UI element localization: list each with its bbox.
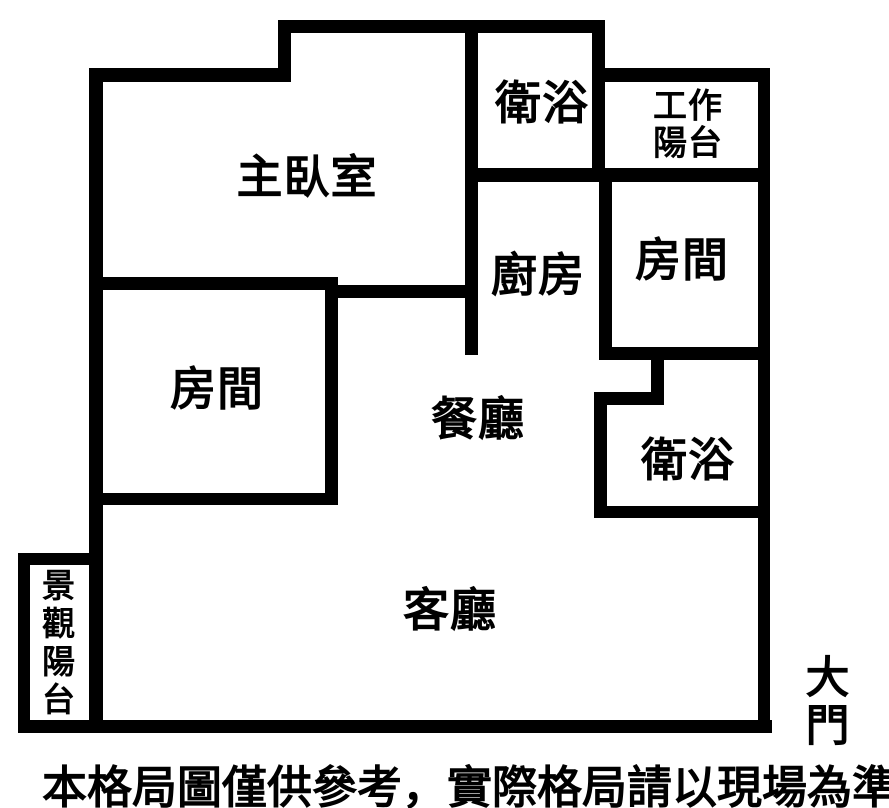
- wall-segment-21: [18, 720, 772, 733]
- label-master-bedroom: 主臥室: [237, 153, 378, 203]
- wall-segment-19: [18, 553, 103, 565]
- label-room-right: 房間: [635, 236, 729, 286]
- disclaimer-text: 本格局圖僅供參考，實際格局請以現場為準: [42, 751, 889, 808]
- wall-segment-3: [278, 20, 605, 33]
- wall-segment-12: [325, 277, 338, 505]
- wall-segment-10: [89, 277, 338, 290]
- label-kitchen: 廚房: [491, 251, 585, 301]
- wall-segment-5: [592, 20, 605, 182]
- wall-segment-0: [89, 68, 103, 733]
- label-room-left: 房間: [170, 365, 264, 415]
- wall-segment-4: [465, 20, 478, 355]
- label-bathroom-top: 衛浴: [495, 79, 589, 129]
- label-dining-room: 餐廳: [431, 395, 525, 445]
- label-living-room: 客廳: [403, 586, 497, 636]
- label-work-balcony: 工作 陽台: [653, 88, 723, 161]
- wall-segment-8: [465, 168, 770, 182]
- wall-segment-18: [594, 506, 770, 518]
- wall-segment-1: [89, 68, 291, 82]
- wall-segment-6: [592, 68, 770, 82]
- label-main-door: 大門: [798, 654, 859, 749]
- label-view-balcony: 景觀陽台: [40, 568, 73, 720]
- wall-segment-14: [599, 347, 770, 360]
- wall-segment-17: [594, 392, 607, 518]
- wall-segment-20: [18, 553, 30, 733]
- floor-plan: 本格局圖僅供參考，實際格局請以現場為準 主臥室衛浴工作 陽台廚房房間房間餐廳衛浴…: [0, 0, 889, 808]
- label-bathroom-right: 衛浴: [641, 436, 735, 486]
- wall-segment-13: [89, 493, 338, 505]
- wall-segment-9: [599, 168, 612, 360]
- wall-segment-11: [325, 285, 478, 298]
